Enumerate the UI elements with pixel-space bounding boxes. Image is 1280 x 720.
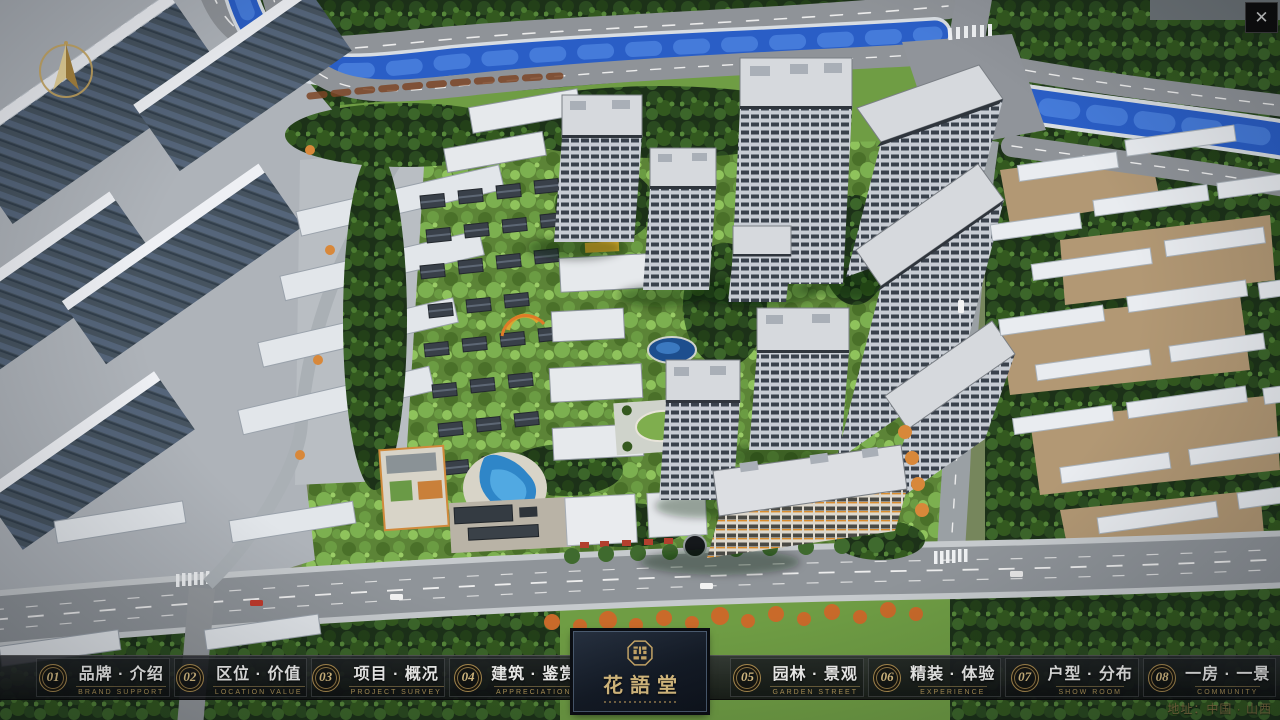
nav-badge-06: 06 [873, 664, 901, 692]
nav-label: 项目 · 概况 [354, 660, 439, 684]
nav-sublabel: LOCATION VALUE [213, 686, 305, 696]
nav-item-project-survey[interactable]: 03 项目 · 概况PROJECT SURVEY [311, 658, 445, 697]
nav-sublabel: SHOW ROOM [1056, 686, 1124, 696]
nav-label: 精装 · 体验 [910, 660, 995, 684]
nav-label: 户型 · 分布 [1048, 660, 1133, 684]
nav-badge-02: 02 [176, 664, 204, 692]
nav-label: 区位 · 价值 [216, 660, 301, 684]
logo-divider [604, 701, 676, 703]
tower [728, 226, 791, 302]
nav-label: 建筑 · 鉴赏 [491, 660, 576, 684]
project-name: 花語堂 [603, 669, 684, 698]
nav-item-garden-landscape[interactable]: 05 园林 · 景观GARDEN STREET [730, 658, 864, 697]
nav-item-architecture[interactable]: 04 建筑 · 鉴赏APPRECIATION [449, 658, 583, 697]
seal-emblem-icon [627, 640, 653, 666]
nav-item-location-value[interactable]: 02 区位 · 价值LOCATION VALUE [174, 658, 308, 697]
presentation-stage: ✕ 01 品牌 · 介绍BRAND SUPPORT 02 区位 · 价值LOCA… [0, 0, 1280, 720]
nav-badge-05: 05 [733, 664, 761, 692]
nav-item-unit-distribution[interactable]: 07 户型 · 分布SHOW ROOM [1005, 658, 1139, 697]
nav-item-room-view[interactable]: 08 一房 · 一景COMMUNITY [1143, 658, 1277, 697]
nav-sublabel: APPRECIATION [494, 686, 574, 696]
nav-sublabel: GARDEN STREET [770, 686, 860, 696]
nav-label: 园林 · 景观 [773, 660, 858, 684]
nav-badge-01: 01 [39, 664, 67, 692]
nav-badge-03: 03 [312, 664, 340, 692]
tower [554, 95, 642, 242]
project-logo-panel[interactable]: 花語堂 [573, 631, 707, 712]
nav-item-brand-intro[interactable]: 01 品牌 · 介绍BRAND SUPPORT [36, 658, 170, 697]
nav-sublabel: EXPERIENCE [918, 686, 987, 696]
nav-sublabel: BRAND SUPPORT [76, 686, 166, 696]
aerial-masterplan-render [0, 0, 1280, 720]
nav-label: 一房 · 一景 [1185, 660, 1270, 684]
nav-badge-04: 04 [454, 664, 482, 692]
tower [643, 148, 716, 290]
close-button[interactable]: ✕ [1245, 2, 1278, 33]
nav-badge-08: 08 [1148, 664, 1176, 692]
compass-north-icon [34, 36, 98, 102]
tower [749, 308, 849, 450]
project-address: 地址：中国 · 山西 [1167, 700, 1272, 717]
nav-badge-07: 07 [1011, 664, 1039, 692]
nav-label: 品牌 · 介绍 [79, 660, 164, 684]
nav-sublabel: COMMUNITY [1195, 686, 1260, 696]
nav-sublabel: PROJECT SURVEY [349, 686, 444, 696]
nav-item-fine-decoration[interactable]: 06 精装 · 体验EXPERIENCE [868, 658, 1002, 697]
